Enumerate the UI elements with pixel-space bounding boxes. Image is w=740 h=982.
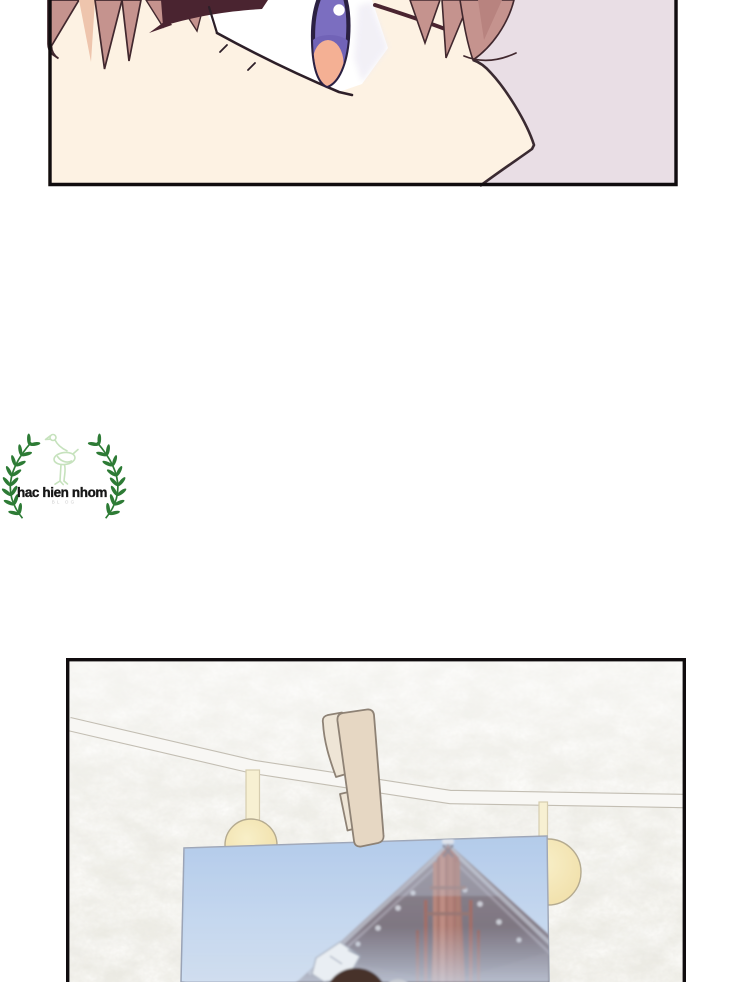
svg-text:hac hien nhom: hac hien nhom <box>17 485 107 500</box>
svg-text:BL OG: BL OG <box>52 500 77 505</box>
